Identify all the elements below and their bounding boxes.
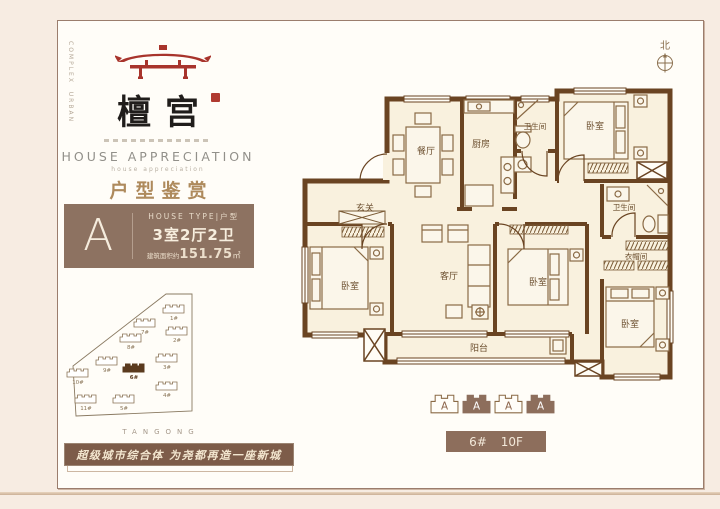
room-label-bedroom-tr: 卧室 [586,120,604,132]
room-label-bedroom-ml: 卧室 [341,280,359,292]
unit-icon-a2: A [462,391,491,416]
slogan-text: 超级城市综合体 为尧都再造一座新城 [76,447,281,463]
map-building-label: 3# [163,365,171,371]
unit-icon-a4: A [526,391,555,416]
room-label-balcony: 阳台 [470,342,488,354]
area-prefix: 建筑面积约 [147,252,180,260]
unit-icons-row: A A A A [430,391,555,416]
project-name-spaced: TANGONG [58,428,258,436]
location-building: 6# [469,435,487,449]
unit-icon-a1: A [430,391,459,416]
page-bottom-edge [0,492,720,495]
map-building-label: 8# [127,345,135,351]
map-building-label: 9# [103,368,111,374]
map-building-label: 5# [120,406,128,412]
unit-icon-a3: A [494,391,523,416]
paifang-arch-icon [115,45,211,85]
house-type-box: A HOUSE TYPE|户型 3室2厅2卫 建筑面积约151.75㎡ [64,204,254,268]
logo-tagline-smallprint [104,139,212,142]
map-building-label: 7# [141,330,149,336]
logo-name: 檀宫 [58,85,258,134]
section-subtitle-en: house appreciation [58,166,258,173]
svg-text:A: A [473,401,480,413]
room-label-entry: 玄关 [356,202,374,214]
room-label-living: 客厅 [440,270,458,282]
compass-icon [655,52,675,74]
map-building-label: 2# [173,338,181,344]
compass: 北 [648,37,682,78]
area-unit: ㎡ [233,251,241,260]
logo-seal-stamp [211,93,220,102]
room-label-bedroom-br: 卧室 [621,318,639,330]
location-floor: 10F [501,435,523,449]
house-type-layout: 3室2厅2卫 [133,224,254,245]
map-building-label: 11# [80,406,92,412]
building-6-highlight [123,364,144,372]
location-tag: 6# 10F [446,431,546,452]
room-label-dining: 餐厅 [417,145,435,157]
side-text-col2: COMPLEX [67,41,74,84]
map-building-label-6: 6# [130,375,139,381]
house-type-letter: A [64,214,132,258]
slogan-banner: 超级城市综合体 为尧都再造一座新城 [64,443,294,466]
room-label-bath-right: 卫生间 [613,202,636,212]
svg-text:A: A [537,401,544,413]
banner-frame-decoration [67,466,293,472]
floor-plan: 餐厅 厨房 卫生间 卧室 玄关 卧室 客厅 卧室 卫生间 衣帽间 卧室 阳台 [290,79,676,399]
map-building-label: 4# [163,393,171,399]
room-label-kitchen: 厨房 [472,138,490,150]
section-title-cn: 户型鉴赏 [58,176,258,203]
map-building-label: 10# [72,380,84,386]
site-plan-map: 1# 7# 2# 8# 9# 3# 6# 10# 4# 11# 5# [66,289,250,429]
svg-text:A: A [441,401,448,413]
map-building-label: 1# [170,316,178,322]
brochure-page: COMPLEX URBAN 檀宫 HOUSE APPRECIATION hous… [57,20,704,489]
house-type-area: 建筑面积约151.75㎡ [133,247,254,262]
house-type-label: HOUSE TYPE|户型 [133,211,254,222]
room-label-bath-top: 卫生间 [524,121,547,131]
svg-text:A: A [505,401,512,413]
area-value: 151.75 [179,247,232,262]
section-title-en: HOUSE APPRECIATION [58,149,258,164]
compass-north-label: 北 [648,37,682,52]
room-label-bedroom-mc: 卧室 [529,276,547,288]
room-label-closet: 衣帽间 [625,251,648,261]
